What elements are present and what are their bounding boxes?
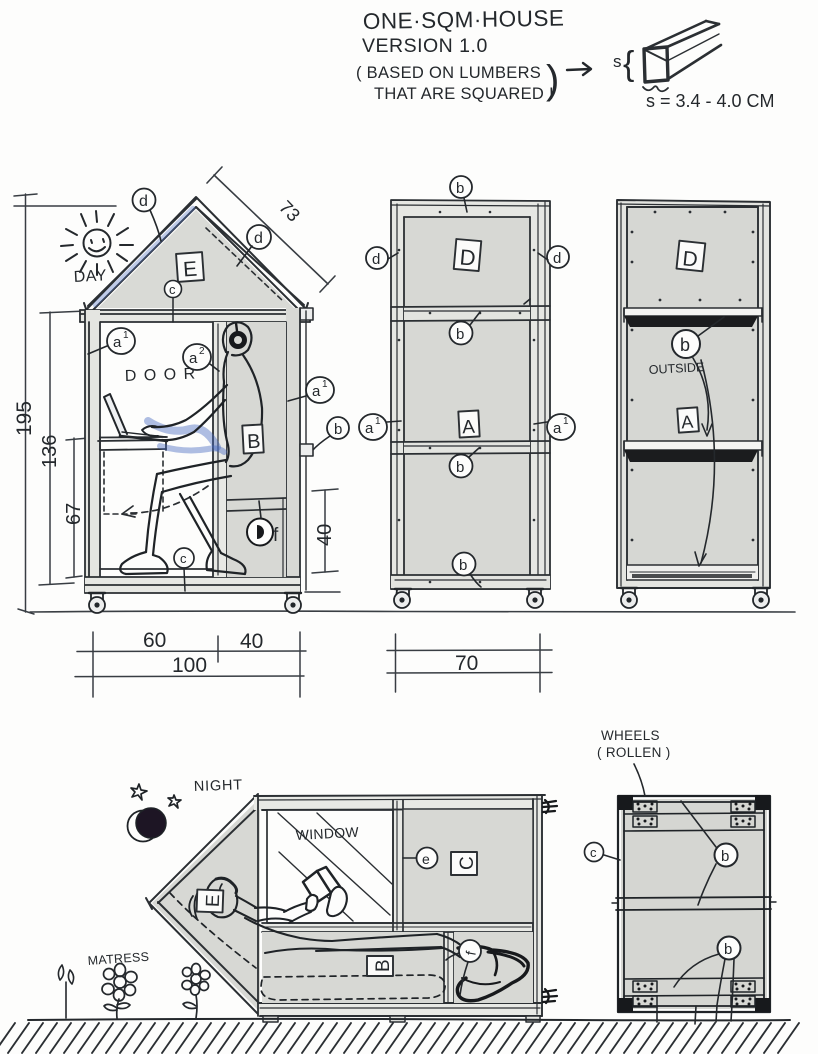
svg-text:THAT ARE SQUARED !: THAT ARE SQUARED ! bbox=[374, 85, 554, 103]
svg-text:B: B bbox=[373, 959, 394, 972]
svg-text:c: c bbox=[169, 282, 176, 297]
svg-text:d: d bbox=[139, 193, 148, 210]
svg-text:f: f bbox=[273, 525, 279, 546]
svg-text:a: a bbox=[312, 383, 321, 400]
svg-text:A: A bbox=[681, 412, 694, 433]
svg-text:{: { bbox=[623, 45, 634, 83]
svg-text:b: b bbox=[459, 557, 467, 574]
svg-text:a: a bbox=[113, 334, 122, 351]
svg-text:40: 40 bbox=[314, 524, 336, 546]
svg-text:E: E bbox=[203, 894, 224, 907]
svg-text:WINDOW: WINDOW bbox=[295, 824, 359, 843]
svg-text:195: 195 bbox=[13, 401, 36, 436]
svg-text:s: s bbox=[613, 52, 622, 71]
svg-text:1: 1 bbox=[375, 416, 381, 427]
svg-text:D: D bbox=[459, 244, 477, 270]
svg-text:( BASED ON LUMBERS: ( BASED ON LUMBERS bbox=[356, 64, 541, 82]
svg-text:): ) bbox=[546, 58, 559, 102]
svg-text:DAY: DAY bbox=[73, 267, 107, 286]
svg-text:67: 67 bbox=[63, 503, 85, 525]
svg-text:c: c bbox=[590, 845, 597, 860]
svg-text:1: 1 bbox=[322, 379, 328, 390]
svg-text:b: b bbox=[724, 941, 732, 958]
svg-text:s = 3.4 - 4.0 CM: s = 3.4 - 4.0 CM bbox=[646, 91, 775, 111]
svg-text:c: c bbox=[180, 551, 187, 566]
svg-text:70: 70 bbox=[455, 652, 478, 675]
svg-text:a: a bbox=[189, 350, 198, 367]
svg-text:b: b bbox=[721, 848, 729, 865]
svg-text:e: e bbox=[422, 851, 430, 867]
svg-text:a: a bbox=[365, 420, 374, 437]
svg-text:C: C bbox=[457, 856, 478, 870]
svg-text:b: b bbox=[334, 421, 342, 438]
svg-text:b: b bbox=[680, 335, 690, 355]
svg-text:d: d bbox=[553, 250, 561, 267]
svg-text:136: 136 bbox=[39, 435, 61, 468]
svg-text:NIGHT: NIGHT bbox=[194, 777, 244, 795]
svg-text:B: B bbox=[247, 431, 261, 454]
svg-text:WHEELS: WHEELS bbox=[601, 728, 660, 743]
svg-text:A: A bbox=[462, 417, 476, 439]
svg-text:E: E bbox=[182, 258, 198, 282]
svg-text:( ROLLEN ): ( ROLLEN ) bbox=[597, 745, 671, 760]
svg-text:d: d bbox=[372, 251, 380, 268]
svg-text:b: b bbox=[456, 459, 464, 476]
svg-text:b: b bbox=[456, 180, 464, 197]
svg-text:40: 40 bbox=[240, 630, 263, 653]
svg-text:b: b bbox=[456, 326, 464, 343]
svg-text:60: 60 bbox=[143, 629, 166, 652]
svg-text:D: D bbox=[681, 247, 698, 271]
svg-text:a: a bbox=[553, 420, 562, 437]
svg-text:VERSION 1.0: VERSION 1.0 bbox=[362, 35, 488, 57]
svg-text:100: 100 bbox=[172, 654, 207, 677]
svg-text:1: 1 bbox=[563, 416, 569, 427]
svg-text:2: 2 bbox=[199, 346, 205, 357]
svg-text:D O O R: D O O R bbox=[125, 366, 197, 385]
svg-text:ONE·SQM·HOUSE: ONE·SQM·HOUSE bbox=[363, 5, 565, 34]
svg-text:1: 1 bbox=[123, 330, 129, 341]
svg-text:d: d bbox=[254, 230, 263, 247]
